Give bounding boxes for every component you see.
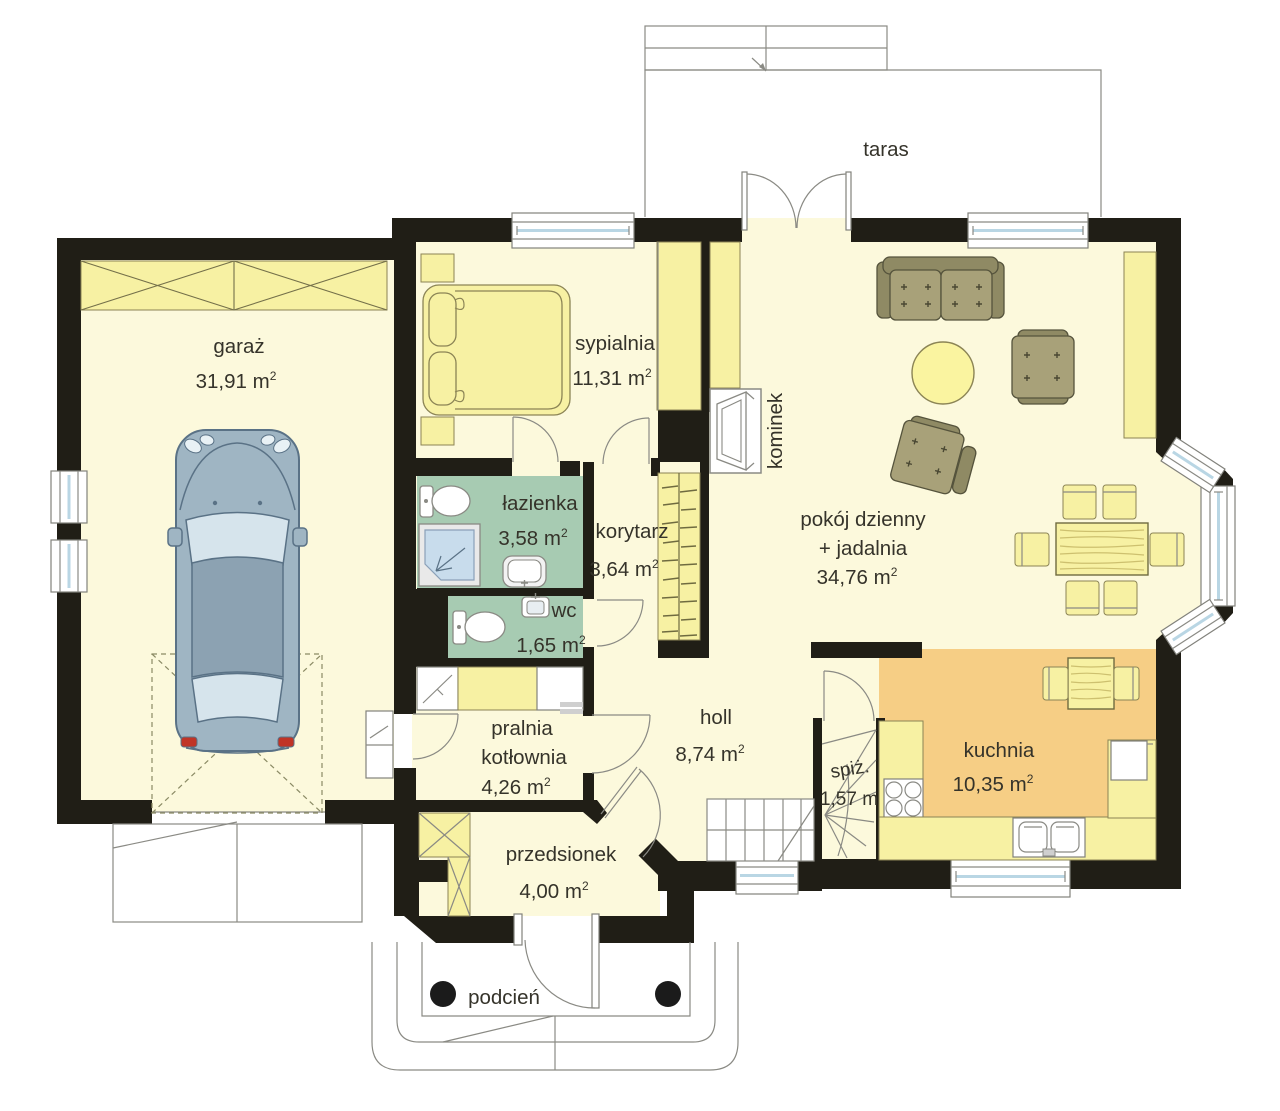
svg-text:1,65 m2: 1,65 m2 (516, 633, 586, 657)
svg-text:1,57 m: 1,57 m (820, 789, 878, 810)
svg-text:31,91 m2: 31,91 m2 (196, 369, 277, 393)
svg-text:pralnia: pralnia (491, 717, 553, 740)
svg-text:kominek: kominek (764, 392, 787, 469)
svg-text:podcień: podcień (468, 986, 540, 1009)
svg-text:34,76 m2: 34,76 m2 (817, 565, 898, 589)
svg-text:sypialnia: sypialnia (575, 332, 655, 355)
svg-text:pokój dzienny: pokój dzienny (800, 508, 926, 531)
svg-text:10,35 m2: 10,35 m2 (953, 772, 1034, 796)
svg-text:8,74 m2: 8,74 m2 (675, 742, 745, 766)
svg-text:11,31 m2: 11,31 m2 (572, 366, 652, 390)
svg-text:korytarz: korytarz (596, 520, 669, 543)
svg-text:łazienka: łazienka (502, 492, 578, 515)
svg-text:holl: holl (700, 706, 732, 729)
svg-text:taras: taras (863, 138, 909, 161)
svg-text:4,26 m2: 4,26 m2 (481, 775, 551, 799)
svg-text:3,58 m2: 3,58 m2 (498, 526, 568, 550)
svg-text:+ jadalnia: + jadalnia (819, 537, 908, 560)
svg-text:kuchnia: kuchnia (964, 739, 1035, 762)
svg-text:przedsionek: przedsionek (506, 843, 617, 866)
svg-text:wc: wc (550, 599, 576, 622)
svg-text:kotłownia: kotłownia (481, 746, 567, 769)
svg-text:3,64 m2: 3,64 m2 (589, 557, 659, 581)
svg-text:4,00 m2: 4,00 m2 (519, 879, 589, 903)
svg-text:garaż: garaż (213, 335, 264, 358)
